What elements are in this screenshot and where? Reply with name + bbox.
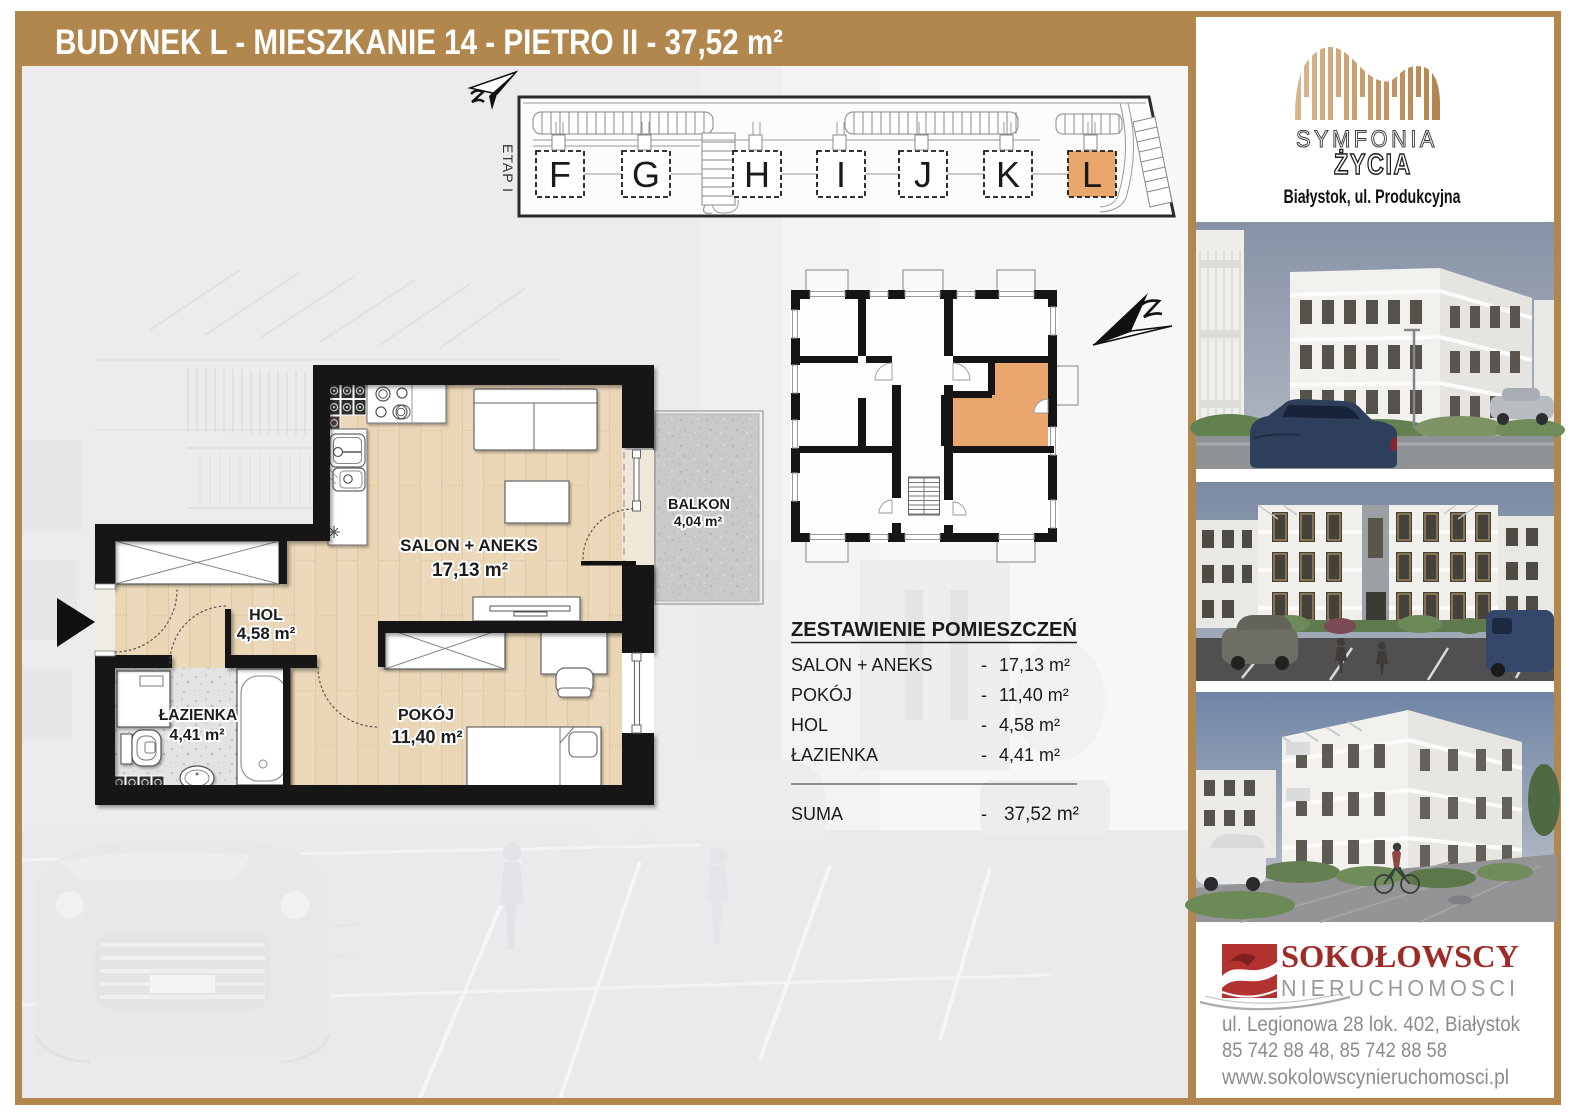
svg-text:SUMA: SUMA [791, 804, 843, 824]
svg-text:ŁAZIENKA: ŁAZIENKA [159, 707, 237, 724]
svg-text:11,40 m²: 11,40 m² [999, 685, 1069, 705]
svg-text:-: - [981, 655, 987, 675]
svg-text:17,13 m²: 17,13 m² [999, 655, 1070, 675]
svg-text:-: - [981, 685, 987, 705]
svg-text:NIERUCHOMOSCI: NIERUCHOMOSCI [1281, 975, 1519, 1001]
svg-text:ŁAZIENKA: ŁAZIENKA [791, 745, 878, 765]
svg-text:11,40 m²: 11,40 m² [391, 727, 462, 747]
svg-text:Białystok, ul. Produkcyjna: Białystok, ul. Produkcyjna [1284, 186, 1461, 208]
svg-text:BALKON: BALKON [668, 497, 730, 513]
svg-text:ETAP I: ETAP I [500, 144, 516, 193]
svg-text:F: F [549, 154, 571, 195]
svg-text:4,58 m²: 4,58 m² [237, 624, 296, 643]
svg-text:L: L [1082, 154, 1102, 195]
svg-text:I: I [836, 154, 846, 195]
svg-text:POKÓJ: POKÓJ [791, 684, 852, 705]
svg-text:4,04 m²: 4,04 m² [674, 513, 723, 529]
svg-text:-: - [981, 715, 987, 735]
svg-text:SOKOŁOWSCY: SOKOŁOWSCY [1281, 938, 1519, 974]
svg-text:POKÓJ: POKÓJ [398, 705, 454, 724]
svg-text:H: H [744, 154, 770, 195]
svg-text:4,41 m²: 4,41 m² [999, 745, 1060, 765]
svg-text:ul. Legionowa 28 lok. 402, Bia: ul. Legionowa 28 lok. 402, Białystok [1222, 1012, 1520, 1036]
svg-text:4,58 m²: 4,58 m² [999, 715, 1060, 735]
svg-text:HOL: HOL [249, 607, 283, 624]
svg-text:HOL: HOL [791, 715, 828, 735]
svg-text:SALON + ANEKS: SALON + ANEKS [791, 655, 933, 675]
svg-text:85 742 88 48, 85 742 88 58: 85 742 88 48, 85 742 88 58 [1222, 1038, 1447, 1062]
svg-text:G: G [632, 154, 660, 195]
svg-text:37,52 m²: 37,52 m² [1004, 804, 1079, 825]
svg-text:-: - [981, 745, 987, 765]
svg-text:-: - [981, 804, 987, 824]
svg-text:J: J [914, 154, 932, 195]
svg-text:K: K [996, 154, 1020, 195]
svg-text:ŻYCIA: ŻYCIA [1334, 149, 1412, 181]
svg-text:ZESTAWIENIE POMIESZCZEŃ: ZESTAWIENIE POMIESZCZEŃ [791, 618, 1077, 641]
svg-text:SALON + ANEKS: SALON + ANEKS [400, 536, 538, 555]
svg-text:4,41 m²: 4,41 m² [169, 727, 224, 744]
svg-text:www.sokolowscynieruchomosci.pl: www.sokolowscynieruchomosci.pl [1221, 1065, 1509, 1089]
svg-text:BUDYNEK L - MIESZKANIE 14 - PI: BUDYNEK L - MIESZKANIE 14 - PIETRO II - … [55, 23, 783, 62]
svg-text:17,13 m²: 17,13 m² [432, 560, 508, 581]
